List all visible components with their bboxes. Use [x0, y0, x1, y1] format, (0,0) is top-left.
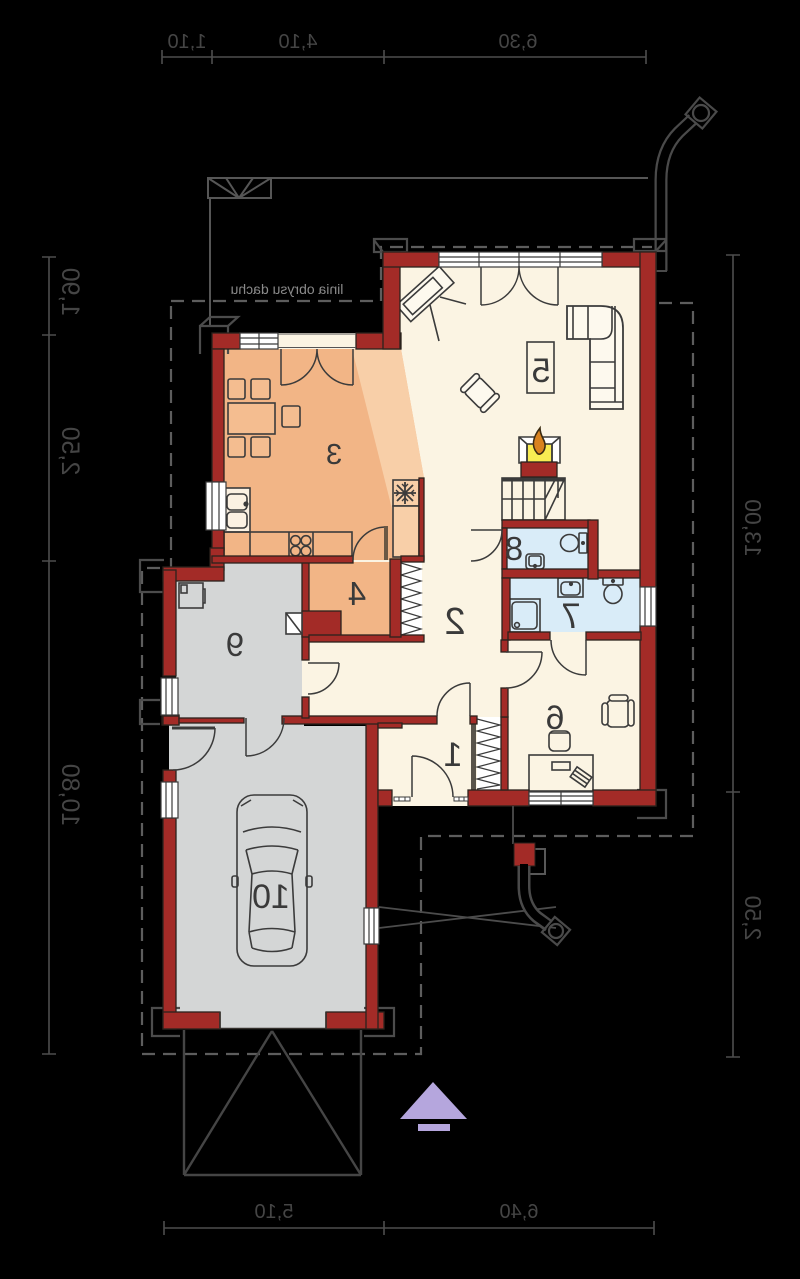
svg-text:5: 5 [532, 352, 551, 390]
svg-text:linia obrysu dachu: linia obrysu dachu [231, 281, 344, 297]
svg-text:6,40: 6,40 [500, 1201, 539, 1223]
svg-text:1,10: 1,10 [168, 31, 207, 53]
svg-text:9: 9 [226, 626, 244, 663]
svg-text:2,50: 2,50 [740, 896, 766, 941]
svg-text:4,10: 4,10 [279, 31, 318, 53]
svg-text:1: 1 [444, 736, 463, 774]
svg-text:10: 10 [252, 878, 290, 916]
svg-text:13,00: 13,00 [740, 499, 766, 557]
svg-text:10,80: 10,80 [56, 764, 84, 827]
svg-text:6,30: 6,30 [499, 31, 538, 53]
svg-text:6: 6 [546, 699, 565, 737]
svg-text:2: 2 [444, 601, 465, 643]
svg-text:8: 8 [505, 530, 523, 567]
svg-text:5,10: 5,10 [255, 1201, 294, 1223]
svg-text:4: 4 [348, 575, 366, 612]
svg-text:1,90: 1,90 [56, 268, 84, 317]
svg-text:7: 7 [561, 597, 580, 636]
svg-text:3: 3 [326, 439, 342, 471]
svg-text:2,50: 2,50 [56, 427, 84, 476]
